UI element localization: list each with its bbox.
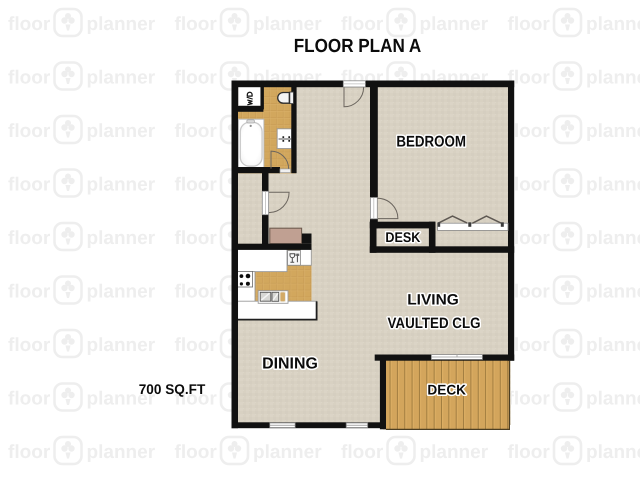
svg-text:planner: planner xyxy=(586,228,640,249)
svg-text:floor: floor xyxy=(175,335,218,356)
svg-text:floor: floor xyxy=(8,389,51,410)
svg-text:floor: floor xyxy=(175,121,218,142)
svg-text:floor: floor xyxy=(8,282,51,303)
svg-text:floor: floor xyxy=(175,175,218,196)
svg-text:floor: floor xyxy=(341,14,384,35)
svg-text:planner: planner xyxy=(87,14,156,35)
svg-text:planner: planner xyxy=(420,14,489,35)
svg-text:planner: planner xyxy=(586,335,640,356)
svg-text:floor: floor xyxy=(175,228,218,249)
svg-text:floor: floor xyxy=(508,14,551,35)
svg-text:planner: planner xyxy=(586,389,640,410)
svg-text:floor: floor xyxy=(8,121,51,142)
svg-text:floor: floor xyxy=(508,442,551,463)
svg-text:floor: floor xyxy=(175,68,218,89)
svg-text:floor: floor xyxy=(175,442,218,463)
svg-text:floor: floor xyxy=(8,442,51,463)
svg-text:BEDROOM: BEDROOM xyxy=(396,133,466,150)
svg-text:LIVING: LIVING xyxy=(407,292,459,309)
svg-text:planner: planner xyxy=(586,14,640,35)
svg-text:planner: planner xyxy=(87,121,156,142)
svg-text:planner: planner xyxy=(586,68,640,89)
svg-text:DECK: DECK xyxy=(427,381,466,397)
svg-text:planner: planner xyxy=(420,442,489,463)
svg-text:planner: planner xyxy=(586,282,640,303)
svg-text:700 SQ.FT: 700 SQ.FT xyxy=(139,381,206,397)
svg-text:DINING: DINING xyxy=(262,356,318,373)
svg-text:floor: floor xyxy=(8,335,51,356)
svg-text:floor: floor xyxy=(175,282,218,303)
svg-text:DESK: DESK xyxy=(385,229,420,245)
svg-text:planner: planner xyxy=(253,14,322,35)
svg-text:planner: planner xyxy=(586,175,640,196)
svg-text:floor: floor xyxy=(8,14,51,35)
svg-text:floor: floor xyxy=(8,68,51,89)
svg-text:planner: planner xyxy=(87,335,156,356)
svg-text:FLOOR PLAN A: FLOOR PLAN A xyxy=(294,36,422,57)
svg-text:planner: planner xyxy=(87,68,156,89)
svg-text:floor: floor xyxy=(8,175,51,196)
svg-text:planner: planner xyxy=(586,442,640,463)
svg-text:floor: floor xyxy=(175,14,218,35)
svg-text:planner: planner xyxy=(87,282,156,303)
svg-text:floor: floor xyxy=(8,228,51,249)
svg-text:floor: floor xyxy=(508,389,551,410)
svg-text:planner: planner xyxy=(586,121,640,142)
svg-text:planner: planner xyxy=(253,442,322,463)
svg-text:planner: planner xyxy=(87,175,156,196)
svg-text:planner: planner xyxy=(87,228,156,249)
svg-text:floor: floor xyxy=(341,442,384,463)
svg-text:VAULTED CLG: VAULTED CLG xyxy=(388,315,481,332)
svg-text:planner: planner xyxy=(87,442,156,463)
